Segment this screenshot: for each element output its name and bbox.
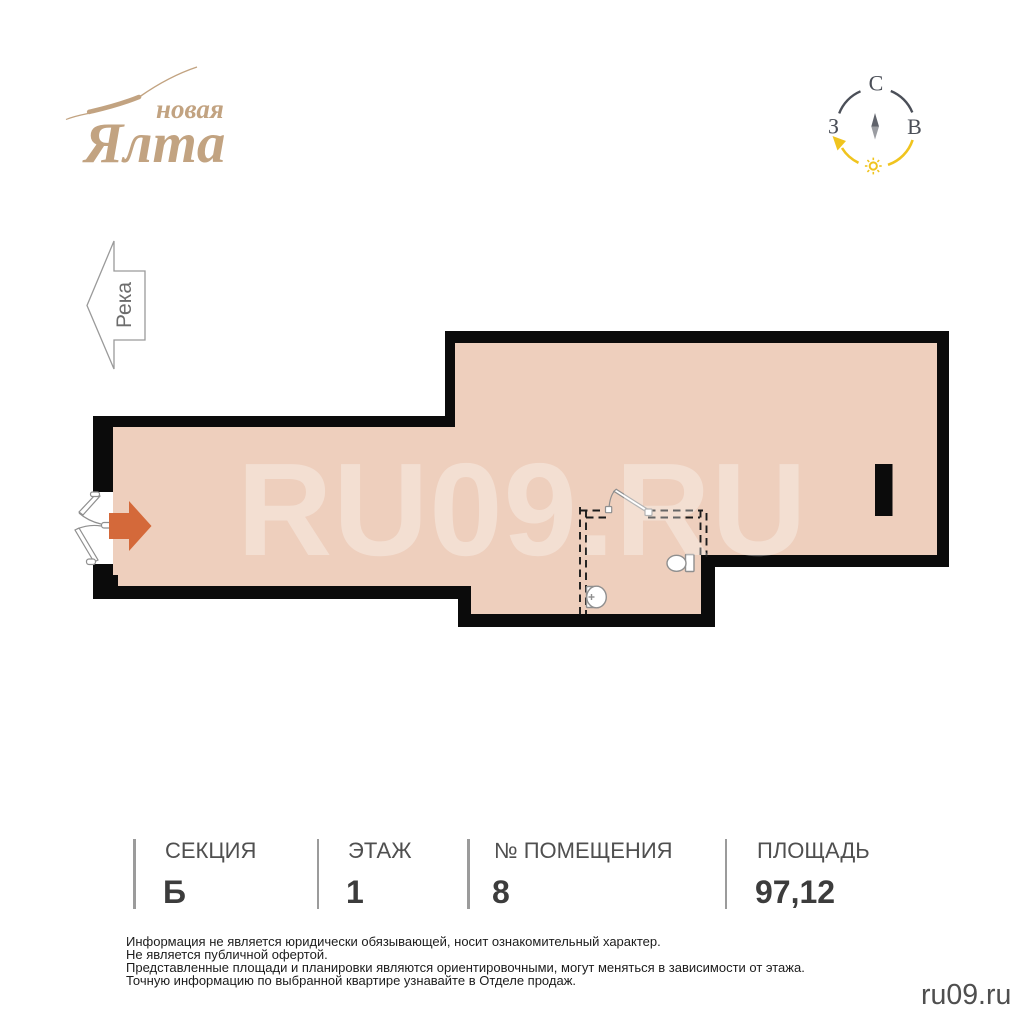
svg-text:В: В bbox=[907, 114, 922, 139]
svg-text:З: З bbox=[828, 114, 839, 139]
svg-text:Река: Река bbox=[113, 282, 136, 328]
svg-text:С: С bbox=[869, 71, 884, 96]
svg-text:Ялта: Ялта bbox=[82, 112, 225, 175]
svg-text:RU09.RU: RU09.RU bbox=[237, 436, 807, 583]
